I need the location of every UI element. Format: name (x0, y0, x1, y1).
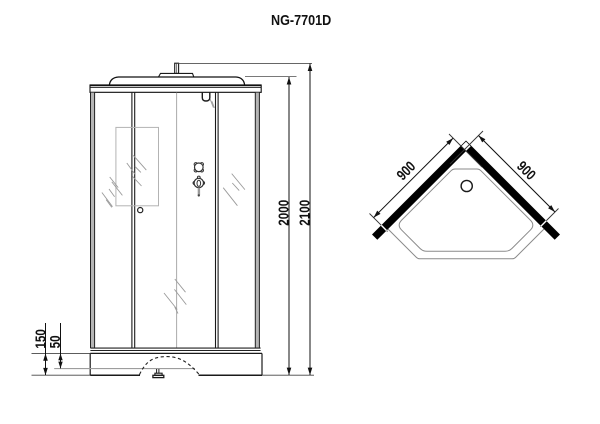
svg-text:50: 50 (47, 335, 64, 348)
svg-text:NG-7701D: NG-7701D (271, 11, 331, 28)
svg-text:2000: 2000 (275, 200, 292, 226)
svg-text:2100: 2100 (296, 200, 313, 226)
